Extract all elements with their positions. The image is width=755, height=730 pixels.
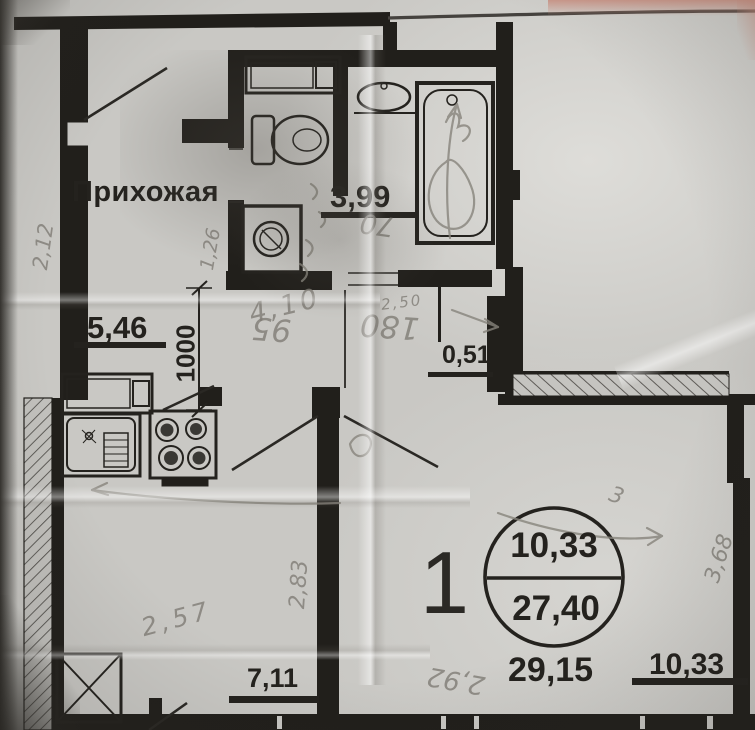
handwritten-below-bath: 70 (358, 207, 396, 242)
stove-icon (150, 411, 216, 486)
niche-area-underline (428, 372, 493, 377)
pencil-arrow-left (92, 490, 340, 504)
hatched-walls (24, 374, 729, 730)
room-area-underline (632, 678, 748, 685)
kitchen-width-label: 5,46 (87, 310, 147, 346)
kitchen-depth-label: 1000 (171, 319, 202, 389)
toilet-icon (252, 116, 328, 164)
stamp-total-area: 27,40 (496, 589, 616, 629)
shaft-cross-icon (57, 654, 121, 722)
pencil-arrow-tub (447, 104, 457, 238)
lower-room-area-label: 7,11 (247, 663, 298, 694)
washing-machine-icon (243, 206, 301, 272)
plan-linework (0, 0, 755, 730)
handwritten-mid-left: 95 (251, 309, 293, 348)
lower-room-underline (229, 696, 319, 703)
stamp-living-area: 10,33 (494, 526, 614, 566)
pencil-loop (429, 160, 474, 229)
overall-area-label: 29,15 (508, 651, 593, 690)
door-swings (84, 68, 438, 730)
kitchen-sink-icon (62, 414, 140, 476)
handwritten-inner-wall: 2,83 (285, 559, 313, 610)
niche-area-label: 0,51 (442, 341, 491, 370)
floor-plan-photo: Прихожая 3,99 5,46 1000 0,51 7,11 1 10,3… (0, 0, 755, 730)
handwritten-mid-right: 180 (359, 306, 421, 346)
kitchen-width-underline (74, 342, 166, 348)
room-area-label: 10,33 (649, 648, 724, 682)
sink-icon (354, 83, 416, 113)
walls (14, 12, 755, 730)
niche-area-value: 0,51 (442, 341, 491, 369)
paper-edge-line (388, 11, 755, 18)
entry-door-notch (66, 121, 88, 147)
bath-shelf-icon (246, 57, 340, 93)
apartment-number: 1 (420, 532, 469, 634)
hallway-label: Прихожая (72, 176, 219, 209)
